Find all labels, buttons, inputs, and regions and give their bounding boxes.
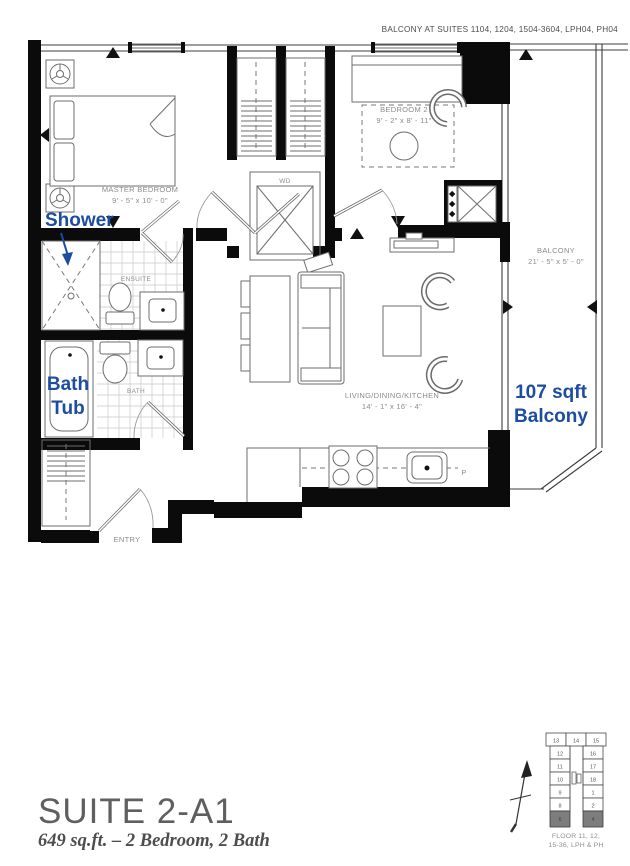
bedroom2-dims: 9' - 2" x 8' - 11": [376, 116, 431, 125]
dining-table-icon: [250, 276, 290, 382]
suite-subtitle: 649 sq.ft. – 2 Bedroom, 2 Bath: [38, 831, 270, 852]
toilet-icon: [109, 283, 131, 311]
unit-number: 4: [592, 817, 595, 823]
stove-icon: [329, 446, 377, 488]
balcony-dims: 21' - 5" x 5' - 0": [528, 257, 584, 266]
washer-dryer-icon: [250, 172, 320, 260]
unit-number: 9: [558, 791, 561, 797]
unit-number: 18: [590, 778, 596, 784]
washer-dryer-label: WD: [279, 178, 290, 185]
shower-annotation: Shower: [45, 210, 114, 231]
unit-number: 1: [591, 791, 594, 797]
living-dims: 14' - 1" x 16' - 4": [362, 402, 422, 411]
unit-number: 11: [557, 765, 563, 771]
toilet-icon: [103, 355, 127, 383]
balcony-sqft-line1: 107 sqft: [515, 382, 587, 403]
unit-number: 15: [593, 739, 599, 745]
keyplan-caption-line2: 15-36, LPH & PH: [548, 842, 603, 849]
bathtub-annotation-line2: Tub: [51, 398, 84, 419]
bathtub-annotation-line1: Bath: [47, 374, 89, 395]
tv-console-icon: [390, 238, 454, 252]
unit-number: 10: [557, 778, 563, 784]
unit-number: 2: [591, 804, 594, 810]
living-label: LIVING/DINING/KITCHEN: [345, 391, 439, 400]
bedroom2-label: BEDROOM 2: [380, 105, 428, 114]
unit-number: 13: [553, 739, 559, 745]
bath-label: BATH: [127, 388, 145, 395]
pantry-label: P: [461, 468, 466, 477]
floor-plan: WD: [0, 0, 630, 570]
table-icon: [390, 132, 418, 160]
unit-number: 6: [559, 817, 562, 823]
master-bedroom-dims: 9' - 5" x 10' - 0": [112, 196, 168, 205]
master-bedroom-label: MASTER BEDROOM: [102, 185, 178, 194]
armchair-icon: [421, 272, 454, 309]
shower-arrow-icon: [62, 252, 73, 266]
keyplan-caption-line1: FLOOR 11, 12,: [552, 833, 600, 840]
balcony-label: BALCONY: [537, 246, 575, 255]
entry-label: ENTRY: [114, 535, 141, 544]
unit-number: 14: [573, 739, 579, 745]
unit-number: 16: [590, 752, 596, 758]
ensuite-label: ENSUITE: [121, 276, 152, 283]
suite-title: SUITE 2-A1: [38, 792, 235, 832]
coffee-table-icon: [383, 306, 421, 356]
living-dining: [241, 252, 462, 397]
unit-number: 12: [557, 752, 563, 758]
unit-number: 8: [558, 804, 561, 810]
keyplan-building: 13 14 15 12 11 10 9 8 16 17 18 1 2 6: [546, 733, 606, 827]
unit-number: 17: [590, 765, 596, 771]
keyplan: 13 14 15 12 11 10 9 8 16 17 18 1 2 6: [498, 724, 630, 864]
entry-area: [42, 440, 153, 531]
floorplan-page: BALCONY AT SUITES 1104, 1204, 1504-3604,…: [0, 0, 630, 866]
north-arrow-icon: [510, 760, 532, 832]
balcony-sqft-line2: Balcony: [514, 406, 588, 427]
